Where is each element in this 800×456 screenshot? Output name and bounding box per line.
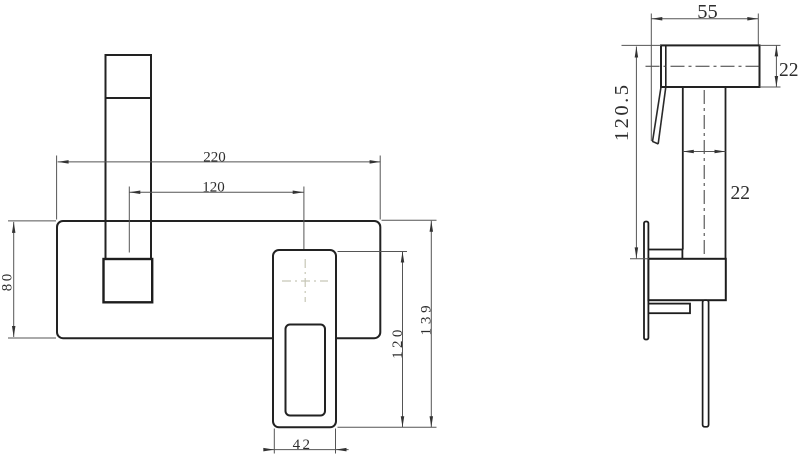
svg-text:22: 22 — [779, 60, 799, 81]
svg-text:120: 120 — [202, 180, 225, 196]
svg-text:22: 22 — [731, 183, 751, 204]
svg-text:120.5: 120.5 — [611, 82, 633, 141]
svg-text:139: 139 — [419, 302, 435, 336]
svg-text:120: 120 — [390, 326, 406, 359]
svg-text:220: 220 — [203, 150, 226, 166]
svg-text:42: 42 — [293, 437, 313, 453]
svg-text:55: 55 — [697, 1, 718, 23]
svg-text:80: 80 — [0, 271, 16, 291]
